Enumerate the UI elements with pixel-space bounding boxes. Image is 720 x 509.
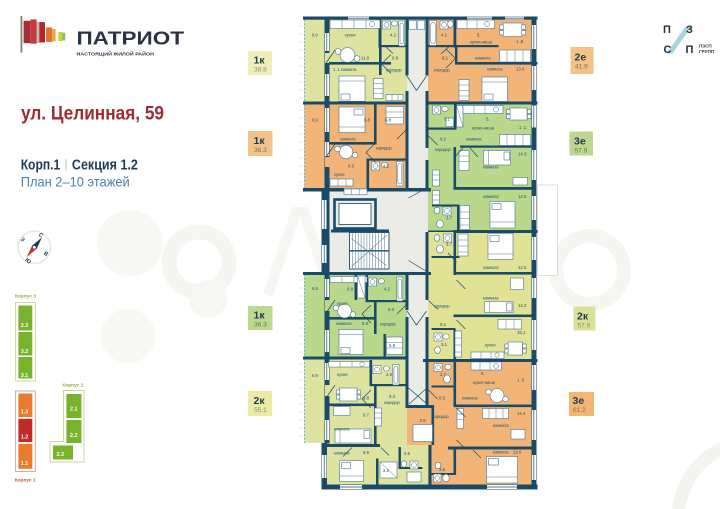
svg-text:комната: комната	[483, 194, 499, 199]
svg-text:П: П	[663, 24, 671, 36]
svg-text:4.2: 4.2	[390, 33, 397, 38]
svg-text:Секция 1.2: Секция 1.2	[72, 158, 138, 174]
svg-text:кухня: кухня	[337, 301, 347, 306]
svg-text:4.2: 4.2	[384, 287, 391, 292]
svg-text:3.1: 3.1	[21, 373, 29, 379]
svg-text:комната: комната	[336, 321, 352, 326]
svg-text:3.2: 3.2	[21, 349, 29, 355]
svg-text:12.5: 12.5	[518, 194, 527, 199]
svg-text:кухня-ниша: кухня-ниша	[472, 126, 495, 131]
svg-text:3е: 3е	[574, 136, 586, 148]
svg-text:1.1: 1.1	[21, 461, 29, 467]
svg-text:коридор: коридор	[376, 146, 392, 151]
svg-text:8.1: 8.1	[442, 56, 449, 61]
svg-text:36.3: 36.3	[254, 322, 267, 329]
svg-text:6.9: 6.9	[312, 373, 318, 378]
svg-text:8.6: 8.6	[348, 164, 355, 169]
svg-text:комната: комната	[334, 451, 350, 456]
svg-text:коридор: коридор	[434, 304, 450, 309]
svg-text:5.: 5.	[486, 117, 490, 122]
svg-text:2.8: 2.8	[386, 372, 393, 377]
svg-text:1.3: 1.3	[21, 409, 29, 415]
svg-text:комната: комната	[487, 67, 503, 72]
svg-text:9.8: 9.8	[347, 287, 354, 292]
svg-text:ПАТРИОТ: ПАТРИОТ	[77, 29, 185, 49]
svg-text:3.1: 3.1	[444, 117, 451, 122]
svg-text:коридор: коридор	[380, 322, 396, 327]
svg-text:1к: 1к	[254, 55, 266, 67]
svg-text:3.1: 3.1	[441, 342, 448, 347]
svg-text:14.3: 14.3	[518, 152, 527, 157]
svg-text:12.6: 12.6	[513, 450, 522, 455]
svg-text:ул. Целинная, 59: ул. Целинная, 59	[21, 103, 164, 125]
svg-text:коридор: коридор	[386, 68, 402, 73]
svg-text:38.8: 38.8	[254, 67, 267, 74]
svg-text:ГРУПП: ГРУПП	[699, 49, 714, 54]
svg-text:П: П	[686, 44, 694, 56]
svg-text:комната: комната	[493, 423, 509, 428]
svg-text:3.7: 3.7	[446, 242, 453, 247]
svg-text:1.2: 1.2	[21, 434, 29, 440]
svg-text:12.5: 12.5	[518, 265, 527, 270]
svg-text:13.9: 13.9	[516, 67, 525, 72]
svg-text:9.8: 9.8	[364, 118, 371, 123]
svg-text:НАСТОЯЩИЙ ЖИЛОЙ РАЙОН: НАСТОЯЩИЙ ЖИЛОЙ РАЙОН	[77, 51, 155, 56]
svg-text:41.9: 41.9	[575, 64, 588, 71]
svg-text:комната: комната	[475, 56, 491, 61]
svg-text:комната: комната	[483, 265, 499, 270]
svg-text:1 .8: 1 .8	[516, 39, 524, 44]
svg-text:3.9: 3.9	[420, 418, 427, 423]
svg-text:1 .1: 1 .1	[519, 125, 527, 130]
svg-text:С: С	[664, 44, 672, 56]
svg-text:2.3: 2.3	[57, 452, 65, 458]
svg-text:11.8: 11.8	[361, 56, 370, 61]
svg-text:З: З	[686, 24, 693, 36]
svg-text:коридор: коридор	[433, 414, 449, 419]
svg-text:1к: 1к	[254, 135, 266, 147]
svg-text:комната: комната	[493, 450, 509, 455]
svg-text:3.6: 3.6	[439, 467, 446, 472]
svg-text:4.2: 4.2	[383, 164, 390, 169]
svg-text:4.1: 4.1	[441, 33, 448, 38]
svg-text:1 .5: 1 .5	[517, 378, 525, 383]
svg-text:ПЗСП: ПЗСП	[699, 44, 712, 49]
svg-text:57.9: 57.9	[578, 323, 591, 330]
svg-text:комната: комната	[334, 427, 350, 432]
svg-text:15.1: 15.1	[517, 330, 526, 335]
svg-text:4.5: 4.5	[404, 451, 411, 456]
svg-text:6.8: 6.8	[392, 56, 399, 61]
svg-text:5.: 5.	[477, 33, 481, 38]
svg-text:14.4: 14.4	[517, 411, 526, 416]
svg-text:3.7: 3.7	[446, 216, 453, 221]
svg-text:36.3: 36.3	[254, 147, 267, 154]
svg-text:2.7: 2.7	[440, 372, 447, 377]
svg-text:6.9: 6.9	[312, 33, 318, 38]
svg-text:61.2: 61.2	[573, 407, 586, 414]
svg-text:6.9: 6.9	[312, 118, 318, 123]
svg-text:комната: комната	[483, 165, 499, 170]
svg-text:2к: 2к	[254, 395, 266, 407]
svg-text:6.9: 6.9	[312, 286, 318, 291]
svg-text:2к: 2к	[577, 311, 589, 323]
svg-text:9.3: 9.3	[389, 394, 396, 399]
svg-text:кухня: кухня	[485, 343, 495, 348]
svg-text:8.5: 8.5	[439, 396, 446, 401]
svg-text:коридор: коридор	[434, 68, 450, 73]
svg-text:2.1: 2.1	[70, 407, 78, 413]
svg-text:План 2–10 этажей: План 2–10 этажей	[21, 174, 130, 190]
svg-text:комната: комната	[340, 137, 356, 142]
svg-text:6.8: 6.8	[385, 118, 392, 123]
svg-text:9.7: 9.7	[363, 413, 370, 418]
svg-text:9.8: 9.8	[362, 321, 369, 326]
svg-text:9.2: 9.2	[440, 137, 447, 142]
svg-text:9.8: 9.8	[363, 396, 370, 401]
svg-text:кухня-ниша: кухня-ниша	[470, 40, 493, 45]
svg-text:2.2: 2.2	[383, 468, 390, 473]
svg-text:14.3: 14.3	[518, 303, 527, 308]
svg-text:кухня-ниша: кухня-ниша	[473, 380, 496, 385]
svg-text:кухня: кухня	[337, 372, 347, 377]
svg-text:2.2: 2.2	[70, 433, 78, 439]
svg-text:55.1: 55.1	[254, 407, 267, 414]
svg-text:3.3: 3.3	[21, 323, 29, 329]
svg-text:кухня: кухня	[334, 172, 344, 177]
svg-text:1 .1 комната: 1 .1 комната	[333, 67, 357, 72]
svg-text:Корп.1: Корп.1	[21, 158, 61, 174]
svg-text:комната: комната	[483, 296, 499, 301]
svg-text:комната: комната	[466, 137, 482, 142]
svg-text:57.9: 57.9	[575, 148, 588, 155]
svg-text:коридор: коридор	[384, 400, 400, 405]
svg-text:6.8: 6.8	[389, 343, 396, 348]
svg-text:1к: 1к	[254, 310, 266, 322]
svg-text:2е: 2е	[575, 52, 587, 64]
svg-text:комната: комната	[462, 396, 478, 401]
svg-text:коридор: коридор	[435, 147, 451, 152]
svg-text:9.2: 9.2	[440, 322, 447, 327]
svg-text:Корпус 3: Корпус 3	[15, 294, 36, 300]
svg-text:9.9: 9.9	[363, 450, 370, 455]
svg-text:5.: 5.	[481, 371, 485, 376]
svg-text:9.3: 9.3	[388, 307, 395, 312]
svg-text:Корпус 1: Корпус 1	[15, 477, 36, 483]
svg-text:3е: 3е	[573, 395, 585, 407]
svg-text:Корпус 2: Корпус 2	[62, 383, 83, 389]
svg-text:кухня: кухня	[345, 33, 355, 38]
